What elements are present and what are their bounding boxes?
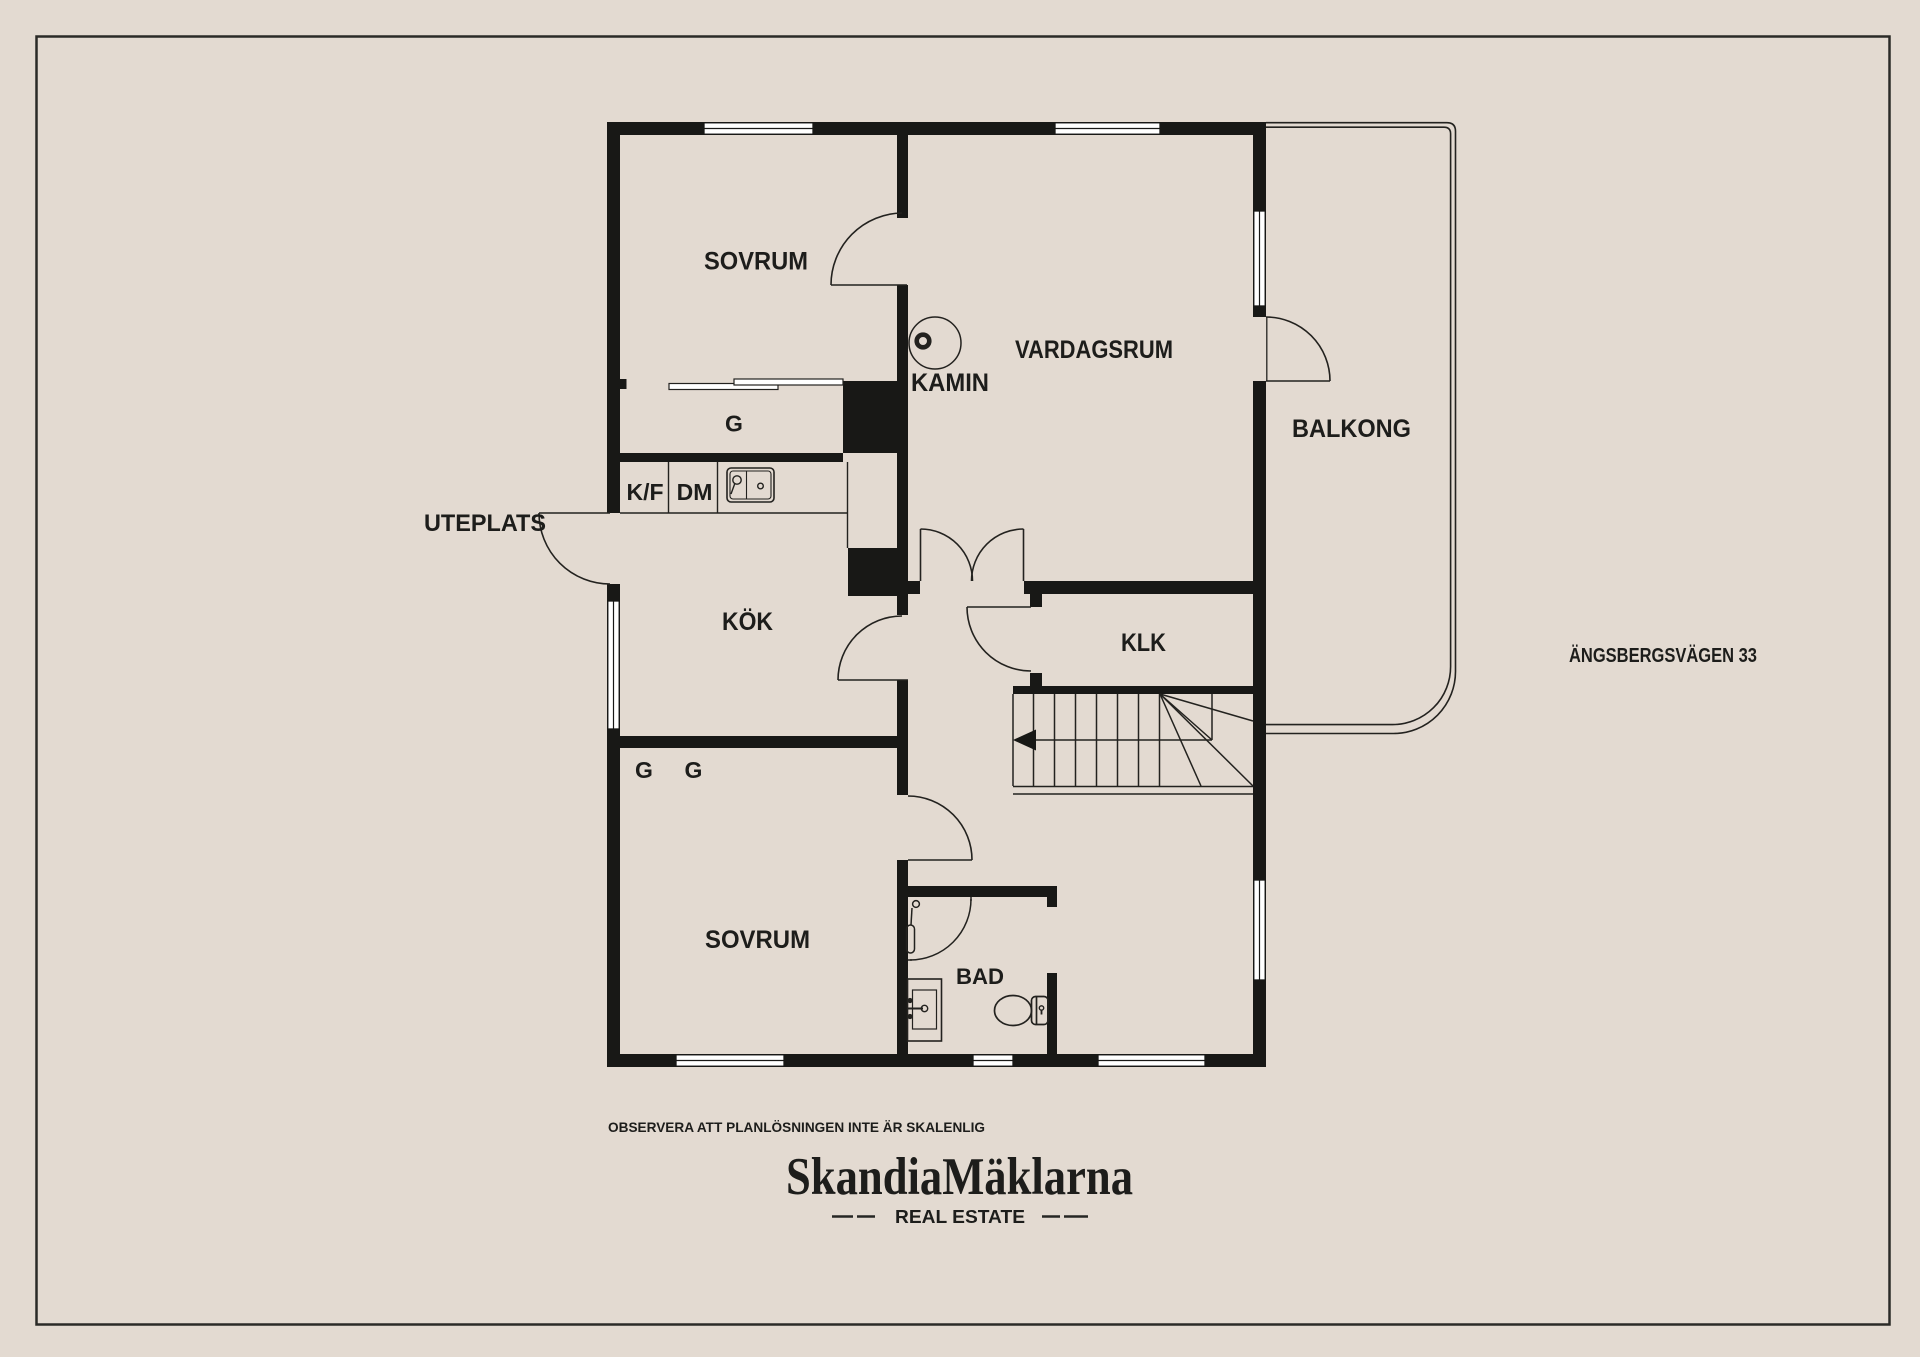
svg-text:G: G [725, 411, 743, 437]
svg-text:KLK: KLK [1121, 629, 1166, 657]
svg-text:KÖK: KÖK [722, 607, 773, 636]
svg-text:OBSERVERA ATT PLANLÖSNINGEN IN: OBSERVERA ATT PLANLÖSNINGEN INTE ÄR SKAL… [608, 1119, 985, 1135]
svg-text:DM: DM [677, 479, 713, 505]
svg-text:G: G [685, 757, 703, 783]
svg-text:REAL ESTATE: REAL ESTATE [895, 1207, 1025, 1227]
svg-text:KAMIN: KAMIN [911, 369, 989, 397]
svg-text:BALKONG: BALKONG [1292, 415, 1411, 443]
svg-text:VARDAGSRUM: VARDAGSRUM [1015, 336, 1173, 364]
svg-text:BAD: BAD [956, 964, 1004, 989]
svg-text:UTEPLATS: UTEPLATS [424, 510, 546, 537]
svg-text:K/F: K/F [626, 479, 663, 505]
svg-text:SOVRUM: SOVRUM [704, 248, 808, 276]
svg-text:G: G [635, 757, 653, 783]
svg-text:ÄNGSBERGSVÄGEN 33: ÄNGSBERGSVÄGEN 33 [1569, 644, 1757, 667]
svg-text:SkandiaMäklarna: SkandiaMäklarna [786, 1148, 1133, 1206]
svg-text:SOVRUM: SOVRUM [705, 926, 810, 954]
